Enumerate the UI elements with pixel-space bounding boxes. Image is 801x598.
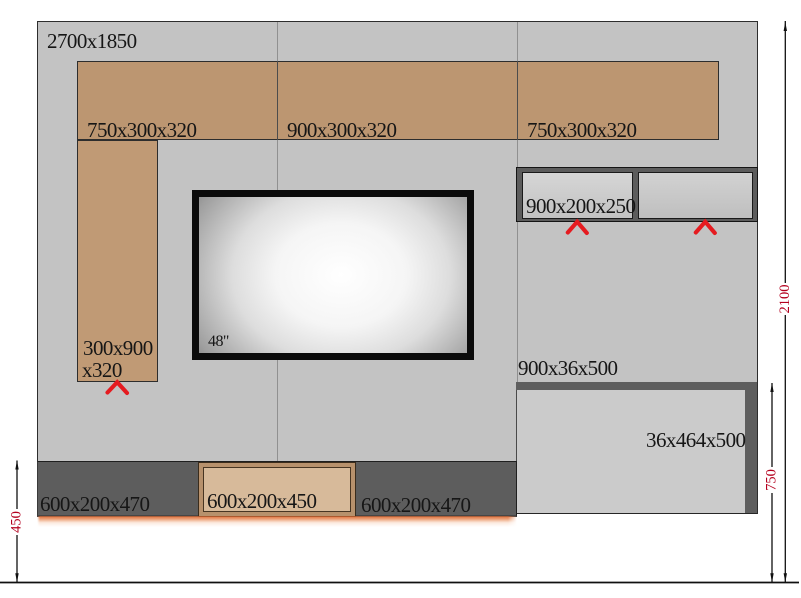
- svg-text:750: 750: [764, 469, 780, 491]
- svg-text:2100: 2100: [777, 285, 793, 314]
- svg-text:450: 450: [9, 511, 25, 533]
